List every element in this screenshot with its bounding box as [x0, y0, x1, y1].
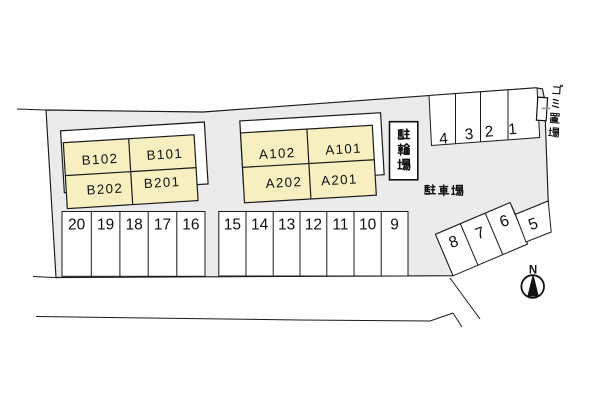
svg-text:2: 2: [484, 123, 494, 141]
svg-text:19: 19: [97, 216, 114, 233]
svg-text:10: 10: [359, 216, 377, 233]
svg-text:A101: A101: [325, 141, 362, 158]
svg-text:11: 11: [332, 216, 348, 233]
svg-text:3: 3: [464, 126, 474, 144]
svg-text:20: 20: [68, 216, 86, 233]
svg-text:15: 15: [224, 216, 241, 233]
svg-text:B101: B101: [146, 146, 184, 163]
svg-text:B202: B202: [86, 180, 124, 197]
svg-text:14: 14: [251, 216, 269, 233]
svg-text:N: N: [529, 265, 537, 277]
svg-text:9: 9: [390, 216, 399, 233]
svg-text:16: 16: [182, 216, 199, 233]
svg-text:12: 12: [305, 216, 322, 233]
svg-text:A102: A102: [259, 145, 296, 162]
svg-text:13: 13: [278, 216, 295, 233]
svg-text:17: 17: [154, 216, 171, 233]
svg-text:B102: B102: [81, 151, 119, 168]
svg-text:A202: A202: [265, 174, 302, 191]
svg-text:4: 4: [439, 130, 449, 148]
svg-text:18: 18: [125, 216, 142, 233]
svg-text:1: 1: [508, 121, 518, 139]
svg-text:B201: B201: [143, 174, 181, 191]
svg-text:A201: A201: [321, 171, 358, 188]
